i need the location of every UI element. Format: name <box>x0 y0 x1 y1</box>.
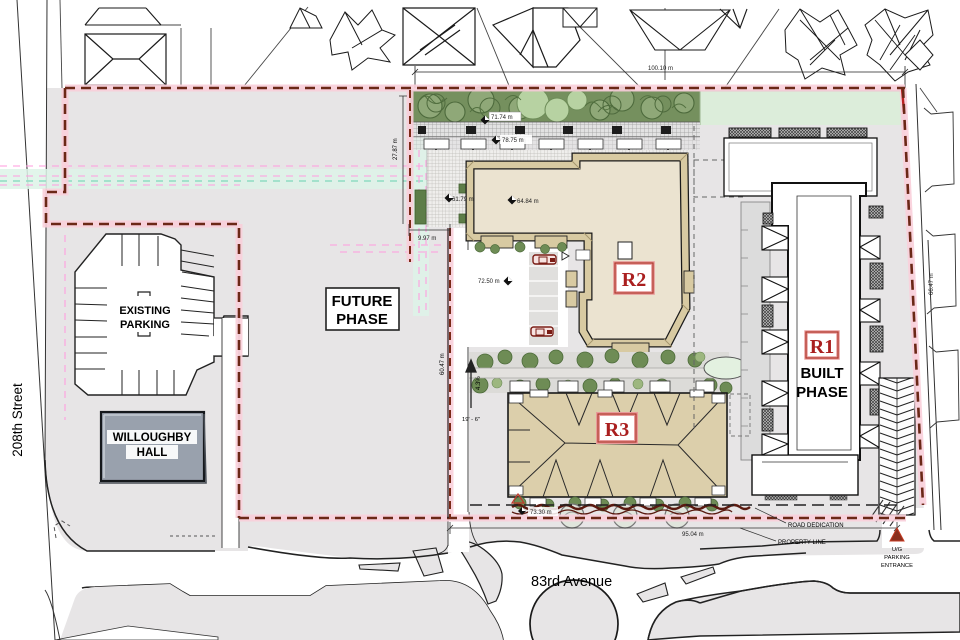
svg-text:BUILT: BUILT <box>800 365 843 382</box>
svg-text:72.50 m: 72.50 m <box>478 279 500 285</box>
svg-text:71.74 m: 71.74 m <box>491 115 513 121</box>
svg-text:HALL: HALL <box>137 447 168 459</box>
svg-text:R1: R1 <box>810 336 834 358</box>
svg-text:27.87 m: 27.87 m <box>393 138 399 160</box>
svg-text:66.47 m: 66.47 m <box>929 273 935 295</box>
svg-text:78.75 m: 78.75 m <box>502 138 524 144</box>
svg-text:R2: R2 <box>622 269 646 291</box>
svg-text:PARKING: PARKING <box>884 555 910 561</box>
svg-text:ROAD DEDICATION: ROAD DEDICATION <box>788 523 844 529</box>
svg-text:R3: R3 <box>605 419 629 441</box>
svg-text:PHASE: PHASE <box>336 311 388 328</box>
svg-text:61.79 m: 61.79 m <box>452 197 474 203</box>
svg-text:PHASE: PHASE <box>796 384 848 401</box>
svg-text:60.47 m: 60.47 m <box>440 353 446 375</box>
svg-text:PROPERTY LINE: PROPERTY LINE <box>778 540 826 546</box>
svg-text:64.84 m: 64.84 m <box>517 199 539 205</box>
svg-text:EXISTING: EXISTING <box>119 305 170 317</box>
svg-text:19' - 6": 19' - 6" <box>462 417 480 423</box>
svg-text:U/G: U/G <box>892 547 903 553</box>
svg-text:100.10 m: 100.10 m <box>648 66 673 72</box>
svg-text:208th Street: 208th Street <box>10 383 25 457</box>
svg-text:4.3%: 4.3% <box>476 376 482 390</box>
svg-text:ENTRANCE: ENTRANCE <box>881 563 913 569</box>
svg-text:FUTURE: FUTURE <box>332 293 393 310</box>
svg-text:73.30 m: 73.30 m <box>530 510 552 516</box>
svg-text:9.97 m: 9.97 m <box>418 236 436 242</box>
svg-text:83rd Avenue: 83rd Avenue <box>531 574 612 590</box>
svg-text:PARKING: PARKING <box>120 319 170 331</box>
svg-text:WILLOUGHBY: WILLOUGHBY <box>113 432 192 444</box>
svg-text:95.04 m: 95.04 m <box>682 532 704 538</box>
